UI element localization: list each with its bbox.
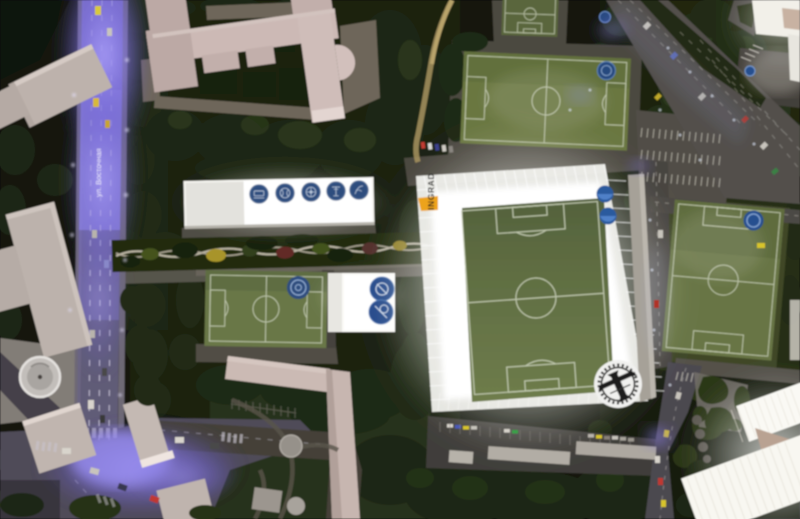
svg-text:ул. Восточная: ул. Восточная	[94, 148, 103, 197]
svg-text:INGRAD: INGRAD	[426, 173, 436, 210]
